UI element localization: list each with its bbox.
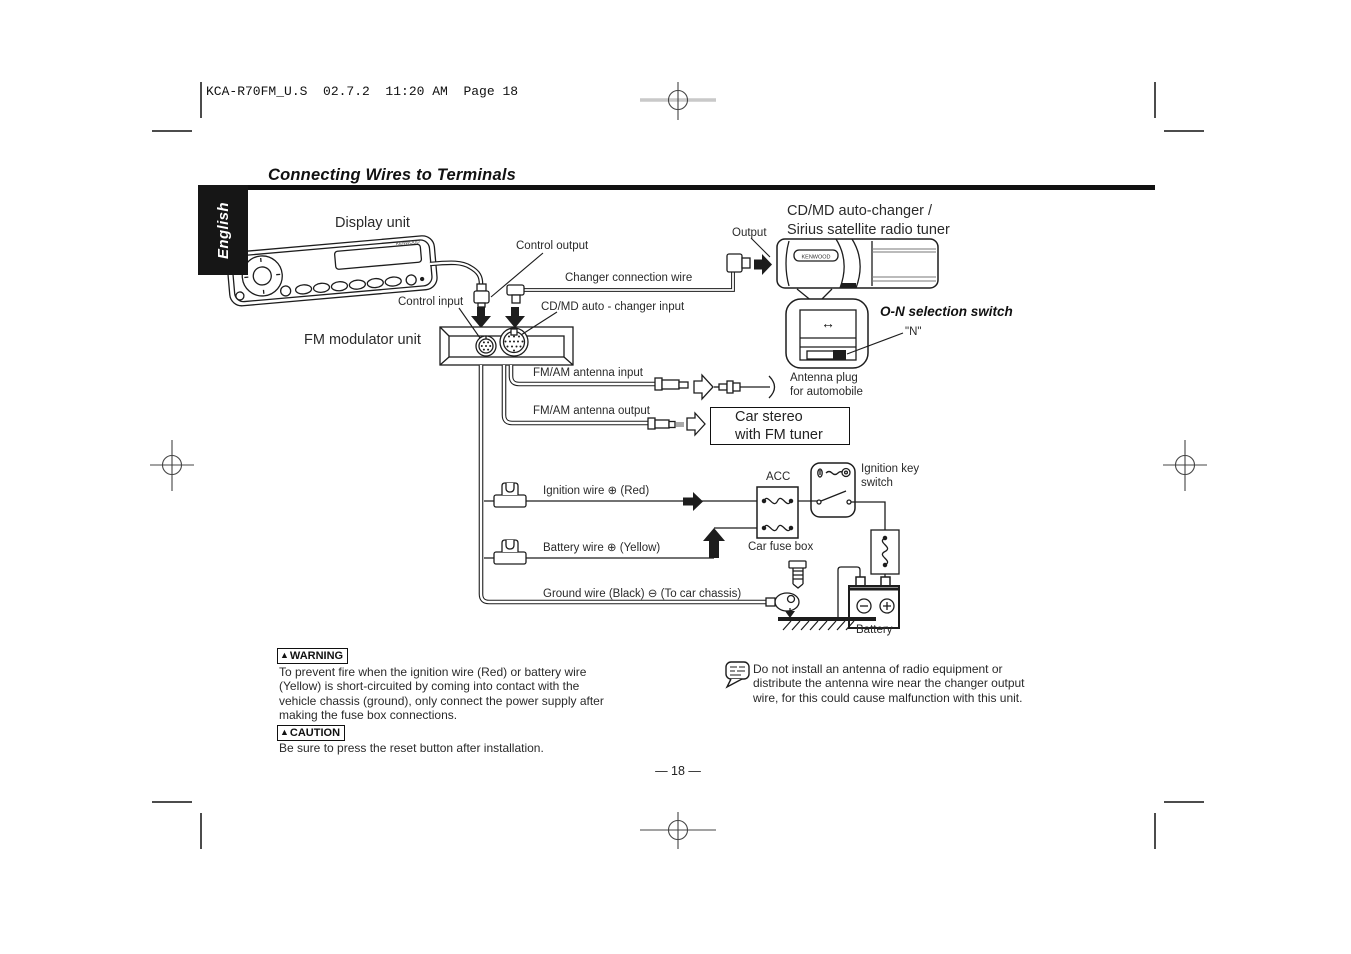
fuse-holder-battery <box>494 540 526 564</box>
registration-mark-left <box>150 440 194 491</box>
car-fuse-box-label: Car fuse box <box>748 540 813 554</box>
changer-brand: KENWOOD <box>801 255 830 261</box>
car-stereo-box: Car stereo with FM tuner <box>710 407 850 445</box>
title-rule <box>204 185 1155 190</box>
changer-input-label: CD/MD auto - changer input <box>541 300 684 314</box>
battery-wire-label: Battery wire ⊕ (Yellow) <box>543 541 660 555</box>
caution-text: Be sure to press the reset button after … <box>279 741 544 755</box>
n-position-label: "N" <box>905 325 921 339</box>
control-output-label: Control output <box>516 239 588 253</box>
wiring-diagram: KENWOOD <box>0 0 1351 954</box>
print-header: KCA-R70FM_U.S 02.7.2 11:20 AM Page 18 <box>206 84 518 99</box>
manual-page: KENWOOD <box>0 0 1351 954</box>
page-number: — 18 — <box>636 764 720 778</box>
changer-input-connector <box>500 328 528 356</box>
changer-connection-wire-label: Changer connection wire <box>565 271 692 285</box>
auto-changer-label: CD/MD auto-changer / Sirius satellite ra… <box>787 202 950 240</box>
down-arrow-changer <box>505 307 525 328</box>
antenna-plug-illustration <box>714 376 775 398</box>
right-arrow-output <box>754 254 772 275</box>
ground-bolt-illustration <box>766 561 806 611</box>
language-tab-label: English <box>215 202 232 259</box>
car-fuse-box-illustration <box>757 487 798 538</box>
caution-badge-label: CAUTION <box>290 727 340 740</box>
ignition-wire-label: Ignition wire ⊕ (Red) <box>543 484 649 498</box>
antenna-output-label: FM/AM antenna output <box>533 404 650 418</box>
warning-text: To prevent fire when the ignition wire (… <box>279 665 604 722</box>
battery-label: Battery <box>856 623 892 637</box>
antenna-input-label: FM/AM antenna input <box>533 366 643 380</box>
warning-triangle-icon: ▲ <box>280 649 289 662</box>
warning-badge-label: WARNING <box>290 650 343 663</box>
ignition-key-switch-label: Ignition key switch <box>861 462 919 491</box>
acc-label: ACC <box>766 470 790 484</box>
warning-badge: ▲ WARNING <box>277 648 348 664</box>
fm-modulator-label: FM modulator unit <box>304 331 421 349</box>
fuse-holder-ignition <box>494 483 526 507</box>
output-label: Output <box>732 226 767 240</box>
language-tab: English <box>198 185 248 275</box>
switch-arrows-icon: ↔ <box>816 315 840 331</box>
control-input-label: Control input <box>398 295 463 309</box>
changer-unit-illustration <box>777 239 938 302</box>
registration-mark-bottom <box>640 812 716 849</box>
control-input-connector <box>476 336 496 356</box>
down-arrow-control <box>471 307 491 328</box>
registration-mark-right <box>1163 440 1207 491</box>
caution-triangle-icon: ▲ <box>280 726 289 739</box>
caution-badge: ▲ CAUTION <box>277 725 345 741</box>
display-unit-label: Display unit <box>335 214 410 232</box>
note-bubble-icon <box>726 662 749 687</box>
ground-wire-label: Ground wire (Black) ⊖ (To car chassis) <box>543 587 741 601</box>
inline-fuse-illustration <box>871 530 899 577</box>
on-selection-switch-label: O-N selection switch <box>880 304 1013 319</box>
page-title: Connecting Wires to Terminals <box>268 166 516 185</box>
registration-mark-top <box>640 82 716 120</box>
note-text: Do not install an antenna of radio equip… <box>753 662 1025 705</box>
label-pointer-lines <box>459 238 770 338</box>
antenna-plug-label: Antenna plug for automobile <box>790 371 863 400</box>
head-unit-brand: KENWOOD <box>396 239 421 246</box>
